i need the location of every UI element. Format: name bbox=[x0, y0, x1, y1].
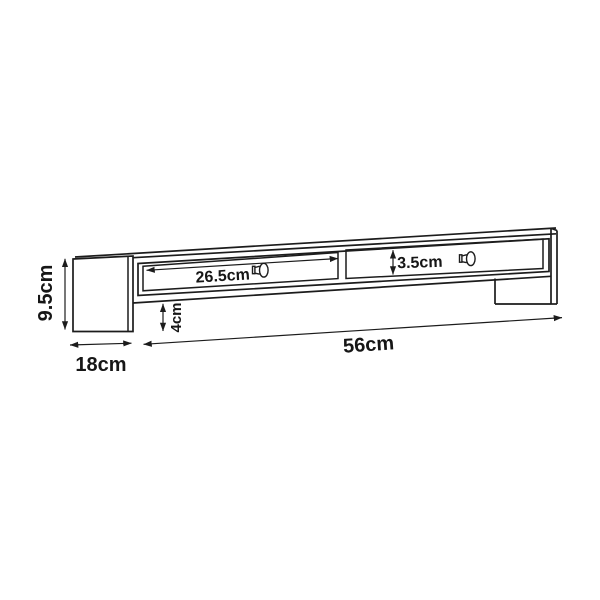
furniture-dimension-diagram: 9.5cm 18cm 56cm 4cm 26.5cm 3.5cm bbox=[0, 0, 600, 600]
dimension-width: 56cm bbox=[144, 318, 563, 358]
drawer-right bbox=[346, 239, 543, 279]
right-side-panel bbox=[551, 228, 557, 304]
drawer-knob-icon bbox=[460, 252, 476, 266]
left-side-panel bbox=[73, 256, 133, 332]
dimension-height: 9.5cm bbox=[35, 259, 65, 330]
drawer-width-label: 26.5cm bbox=[195, 266, 250, 286]
height-label: 9.5cm bbox=[35, 265, 57, 322]
dimension-drawer-front-height: 3.5cm bbox=[393, 250, 443, 274]
bottom-clearance-label: 4cm bbox=[168, 302, 185, 332]
dimension-depth: 18cm bbox=[70, 343, 132, 376]
drawer-front-height-label: 3.5cm bbox=[397, 254, 443, 273]
dimension-drawer-width: 26.5cm bbox=[147, 259, 339, 287]
right-support-foot bbox=[495, 279, 551, 305]
furniture-outline bbox=[73, 228, 557, 332]
dimension-diagram-page: 9.5cm 18cm 56cm 4cm 26.5cm 3.5cm bbox=[0, 0, 600, 600]
width-label: 56cm bbox=[342, 332, 395, 358]
depth-label: 18cm bbox=[75, 354, 126, 376]
drawer-knob-icon bbox=[253, 263, 269, 277]
dimension-bottom-clearance: 4cm bbox=[163, 302, 185, 332]
